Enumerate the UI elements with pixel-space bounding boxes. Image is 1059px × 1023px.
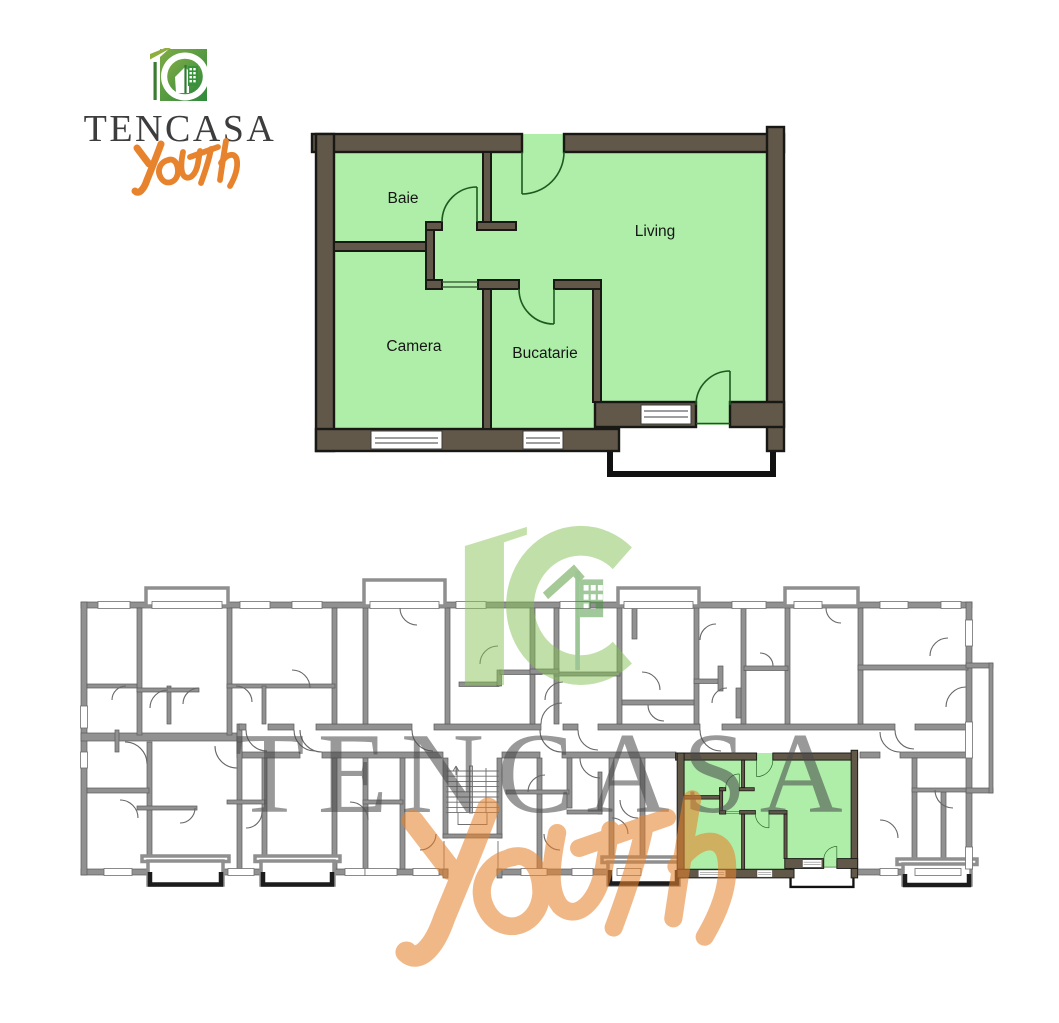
svg-text:Baie: Baie xyxy=(387,190,418,207)
svg-text:TENCASA: TENCASA xyxy=(84,108,277,150)
svg-text:Living: Living xyxy=(635,223,676,240)
svg-text:Camera: Camera xyxy=(386,338,442,355)
svg-text:Bucatarie: Bucatarie xyxy=(512,345,577,362)
svg-text:TENCASA: TENCASA xyxy=(234,710,855,837)
